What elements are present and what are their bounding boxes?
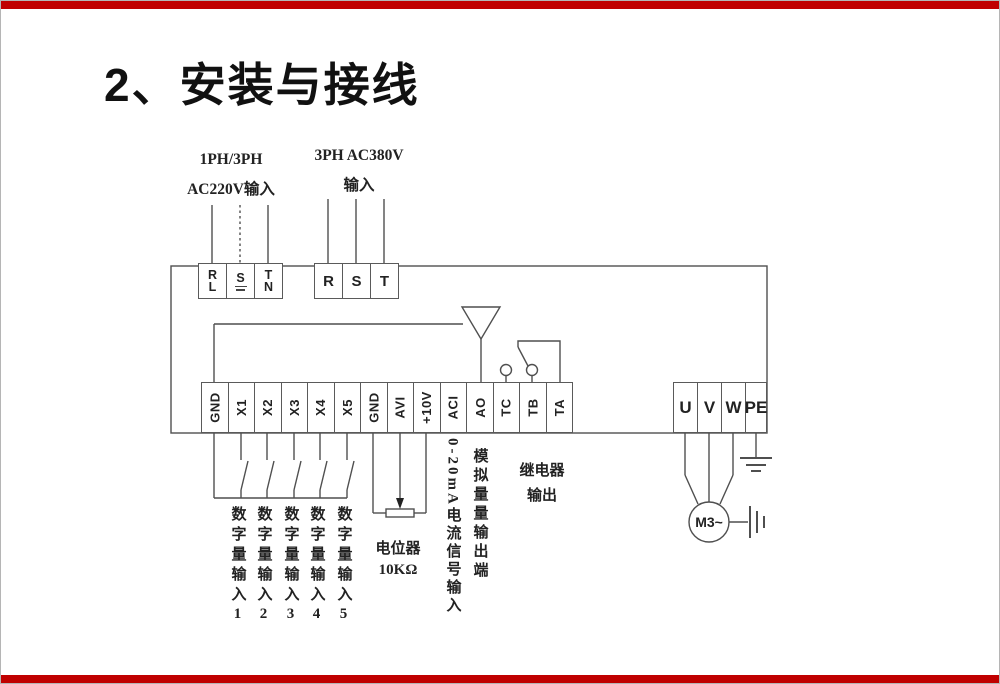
ac220v-input-label-line2: AC220V输入 bbox=[187, 177, 275, 199]
digital-input-switch-x3 bbox=[294, 433, 301, 498]
terminal-v: V bbox=[697, 382, 722, 433]
terminal-pe: PE bbox=[745, 382, 767, 433]
terminal-s-underlined: S bbox=[226, 263, 255, 299]
terminal-t-n: TN bbox=[254, 263, 283, 299]
ac220v-input-wires bbox=[212, 205, 268, 264]
motor-label: M3~ bbox=[689, 514, 729, 530]
terminal-gnd-2: GND bbox=[360, 382, 388, 433]
s-underline-short bbox=[236, 289, 245, 291]
terminal-ao: AO bbox=[466, 382, 494, 433]
terminal-ta: TA bbox=[546, 382, 574, 433]
terminal-r: R bbox=[314, 263, 343, 299]
terminal-aci: ACI bbox=[440, 382, 468, 433]
relay-contact-symbol bbox=[501, 341, 561, 382]
terminal-x3: X3 bbox=[281, 382, 309, 433]
terminal-plus10v: +10V bbox=[413, 382, 441, 433]
terminal-w: W bbox=[721, 382, 746, 433]
ac220v-input-label-line1: 1PH/3PH bbox=[200, 151, 263, 169]
terminal-s: S bbox=[342, 263, 371, 299]
potentiometer-label-line2: 10KΩ bbox=[379, 562, 418, 579]
terminal-tc: TC bbox=[493, 382, 521, 433]
terminal-gnd-1: GND bbox=[201, 382, 229, 433]
terminal-x2: X2 bbox=[254, 382, 282, 433]
terminal-r-l: RL bbox=[198, 263, 227, 299]
motor-ground-icon bbox=[750, 506, 764, 538]
terminal-tb: TB bbox=[519, 382, 547, 433]
digital-input-switch-x2 bbox=[267, 433, 274, 498]
slide-page: 2、安装与接线 bbox=[0, 0, 1000, 684]
digital-input-4-label: 数字量输入4 bbox=[307, 506, 328, 627]
potentiometer-symbol bbox=[373, 433, 426, 517]
relay-output-label-line1: 继电器 bbox=[519, 459, 564, 480]
wiring-diagram-lines bbox=[1, 1, 1000, 684]
ac380v-input-label-line1: 3PH AC380V bbox=[314, 147, 403, 165]
terminal-u: U bbox=[673, 382, 698, 433]
digital-input-3-label: 数字量输入3 bbox=[281, 506, 302, 627]
terminal-x1: X1 bbox=[228, 382, 256, 433]
terminal-x5: X5 bbox=[334, 382, 362, 433]
terminal-t: T bbox=[370, 263, 399, 299]
digital-input-2-label: 数字量输入2 bbox=[254, 506, 275, 627]
analog-output-label: 模拟量量输出端 bbox=[470, 448, 491, 581]
digital-input-switch-x5 bbox=[347, 433, 354, 498]
current-signal-label: 0-20mA电流信号输入 bbox=[443, 438, 464, 615]
terminal-avi: AVI bbox=[387, 382, 415, 433]
relay-output-label-line2: 输出 bbox=[527, 484, 557, 505]
s-underline bbox=[235, 286, 247, 288]
digital-input-switch-x4 bbox=[320, 433, 327, 498]
ac380v-input-label-line2: 输入 bbox=[343, 173, 374, 195]
ac380v-input-wires bbox=[328, 199, 384, 264]
digital-input-1-label: 数字量输入1 bbox=[228, 506, 249, 627]
digital-input-switch-x1 bbox=[241, 433, 248, 498]
pe-ground-icon bbox=[740, 433, 772, 471]
digital-input-common-rail bbox=[214, 433, 347, 498]
analog-meter-symbol bbox=[214, 307, 500, 382]
digital-input-5-label: 数字量输入5 bbox=[334, 506, 355, 627]
potentiometer-label-line1: 电位器 bbox=[375, 537, 420, 558]
terminal-x4: X4 bbox=[307, 382, 335, 433]
